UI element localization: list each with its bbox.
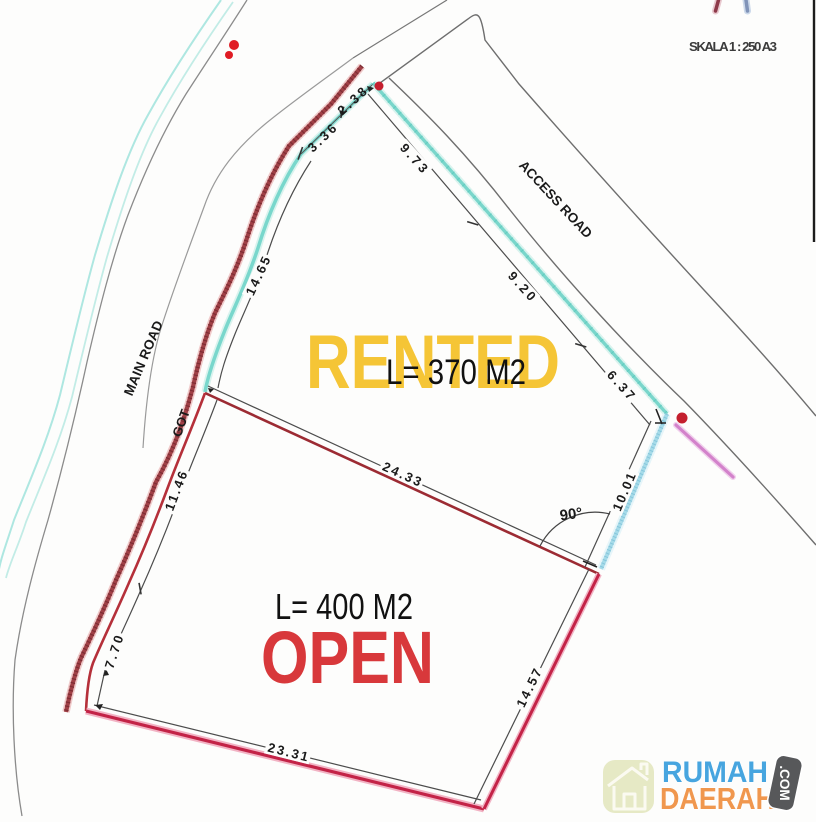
svg-text:.COM: .COM bbox=[777, 765, 792, 800]
svg-text:90°: 90° bbox=[559, 504, 584, 524]
svg-text:SKALA 1 : 250 A3: SKALA 1 : 250 A3 bbox=[689, 39, 777, 54]
svg-text:OPEN: OPEN bbox=[261, 616, 434, 699]
svg-text:DAERAH: DAERAH bbox=[660, 781, 775, 816]
svg-text:L= 370 M2: L= 370 M2 bbox=[386, 352, 526, 392]
